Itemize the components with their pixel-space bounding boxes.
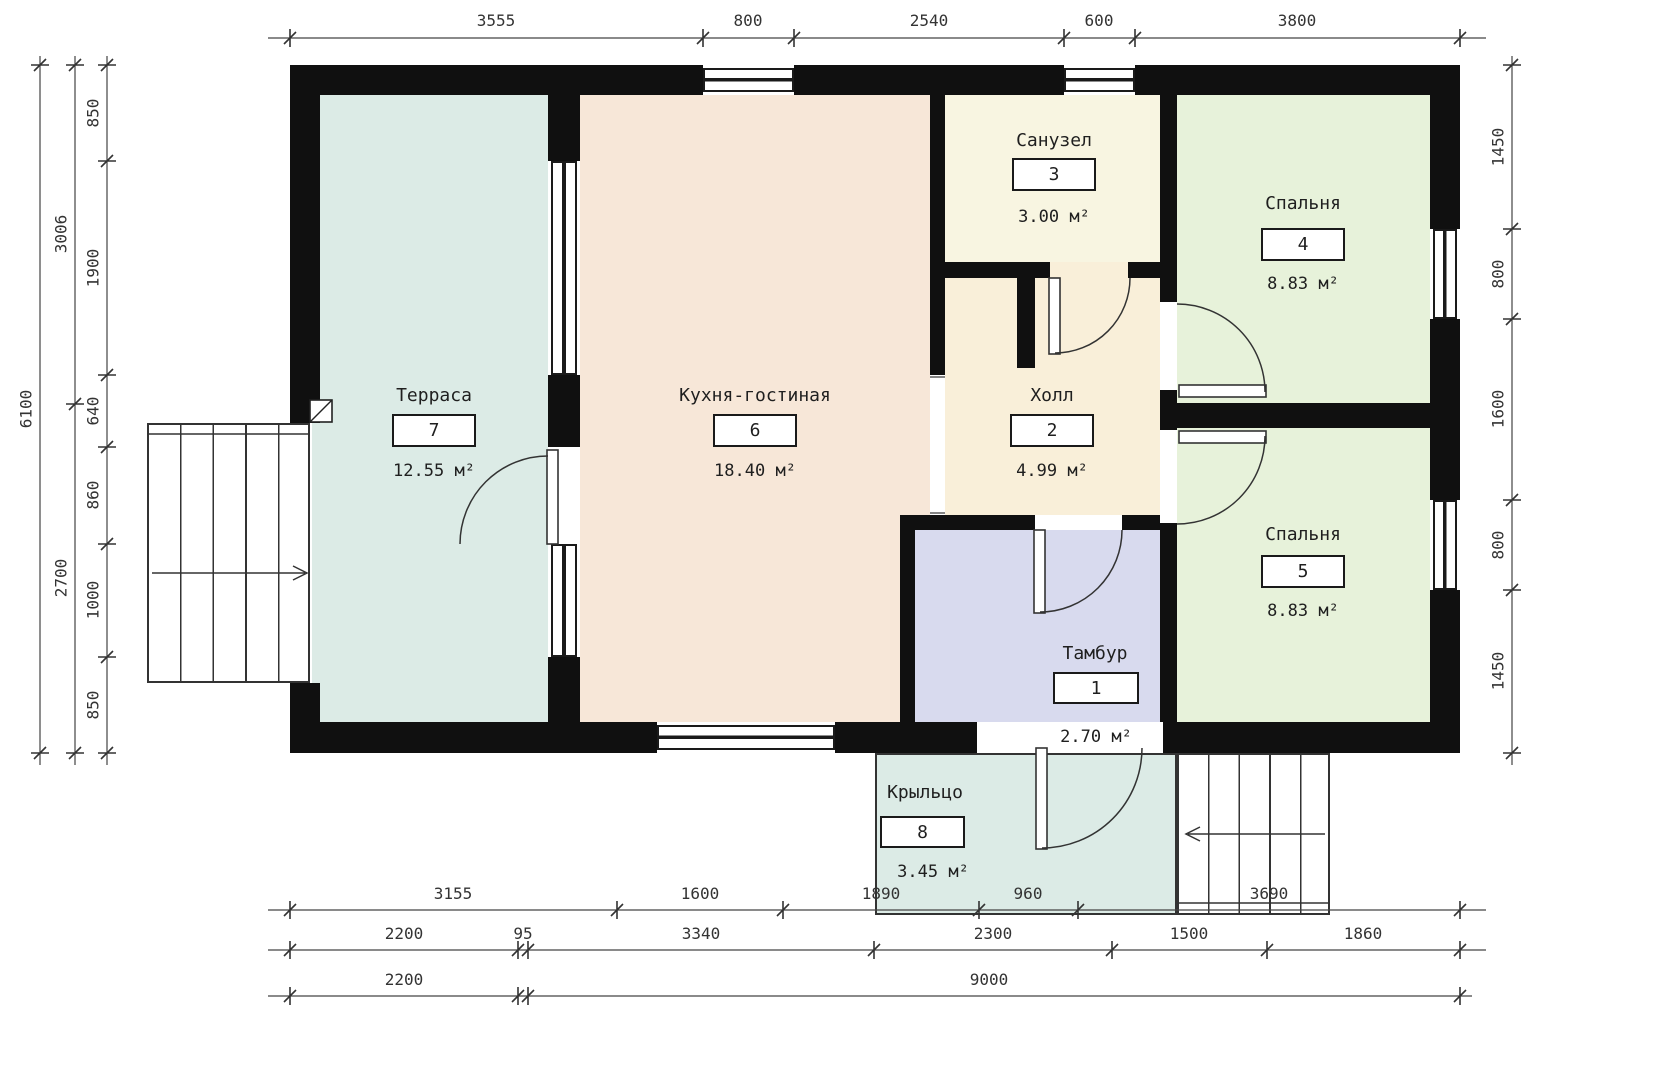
wall-hall-bedrooms-seg2 xyxy=(1160,390,1177,430)
room-fill-terrace xyxy=(312,95,548,722)
room-area: 18.40 м² xyxy=(714,461,796,481)
dim-bottom2-2: 3340 xyxy=(682,924,721,943)
room-number-box: 6 xyxy=(713,414,797,447)
wall-vestibule-top-seg1 xyxy=(900,515,1035,530)
door-leaf-terrace xyxy=(547,450,558,544)
room-number-box: 1 xyxy=(1053,672,1139,704)
wall-bottom-seg2 xyxy=(835,722,977,753)
room-area: 12.55 м² xyxy=(393,461,475,481)
dim-bottom1-3: 960 xyxy=(1014,884,1043,903)
wall-hall-bedrooms-seg3 xyxy=(1160,523,1177,722)
room-name: Кухня-гостиная xyxy=(679,385,831,406)
room-area: 4.99 м² xyxy=(1016,461,1088,481)
dim-right-3: 800 xyxy=(1489,531,1508,560)
room-area: 8.83 м² xyxy=(1267,601,1339,621)
wall-bottom-seg3 xyxy=(1163,722,1460,753)
room-number: 7 xyxy=(429,420,440,441)
room-name: Тамбур xyxy=(1062,643,1127,664)
wall-hall-bedrooms-seg1 xyxy=(1160,95,1177,302)
room-name: Спальня xyxy=(1265,524,1341,545)
wall-right-seg1 xyxy=(1430,65,1460,229)
wall-right-seg2 xyxy=(1430,319,1460,500)
dim-left-inner-0: 850 xyxy=(84,99,103,128)
dim-top-2: 2540 xyxy=(910,11,949,30)
dim-left-inner-4: 1000 xyxy=(84,581,103,620)
window-bathroom-top xyxy=(1064,68,1135,92)
dim-left-inner-1: 1900 xyxy=(84,249,103,288)
wall-terrace-kitchen-seg1 xyxy=(548,65,580,161)
stairs-terrace xyxy=(147,423,310,683)
wall-vestibule-top-seg2 xyxy=(1122,515,1160,530)
room-number: 5 xyxy=(1298,561,1309,582)
window-bedroom5 xyxy=(1433,500,1457,590)
room-number-box: 3 xyxy=(1012,158,1096,191)
room-number-box: 4 xyxy=(1261,228,1345,261)
dim-left-mid-1: 2700 xyxy=(52,559,71,598)
floor-plan-canvas: Терраса 7 12.55 м² Кухня-гостиная 6 18.4… xyxy=(0,0,1666,1080)
room-number-box: 2 xyxy=(1010,414,1094,447)
dim-bottom2-5: 1860 xyxy=(1344,924,1383,943)
dim-left-outer-0: 6100 xyxy=(17,390,36,429)
wall-bathroom-bottom-seg1 xyxy=(945,262,1050,278)
room-name: Холл xyxy=(1030,385,1073,406)
dim-bottom3-0: 2200 xyxy=(385,970,424,989)
dim-bottom1-0: 3155 xyxy=(434,884,473,903)
window-bedroom4 xyxy=(1433,229,1457,319)
room-number-box: 7 xyxy=(392,414,476,447)
room-number: 4 xyxy=(1298,234,1309,255)
dim-top-3: 600 xyxy=(1085,11,1114,30)
room-area: 8.83 м² xyxy=(1267,274,1339,294)
dim-bottom2-1: 95 xyxy=(513,924,532,943)
dim-bottom2-3: 2300 xyxy=(974,924,1013,943)
wall-terrace-kitchen-seg3 xyxy=(548,657,580,722)
dim-right-0: 1450 xyxy=(1489,128,1508,167)
dim-right-1: 800 xyxy=(1489,260,1508,289)
dim-bottom2-4: 1500 xyxy=(1170,924,1209,943)
wall-top-seg3 xyxy=(1135,65,1460,95)
window-terrace-wall-lower xyxy=(551,544,577,657)
passage-thresholds xyxy=(930,377,945,513)
window-kitchen-top xyxy=(703,68,794,92)
window-terrace-wall-upper xyxy=(551,161,577,375)
room-number-box: 8 xyxy=(880,816,965,848)
dim-left-mid-0: 3006 xyxy=(52,215,71,254)
wall-bedroom-divider xyxy=(1177,403,1430,428)
dim-right-2: 1600 xyxy=(1489,390,1508,429)
wall-terrace-kitchen-seg2 xyxy=(548,375,580,447)
wall-top-seg2 xyxy=(794,65,1064,95)
room-number: 6 xyxy=(750,420,761,441)
dim-bottom1-1: 1600 xyxy=(681,884,720,903)
wall-right-seg3 xyxy=(1430,590,1460,753)
dim-bottom1-4: 3690 xyxy=(1250,884,1289,903)
room-name: Спальня xyxy=(1265,193,1341,214)
dim-left-inner-3: 860 xyxy=(84,481,103,510)
window-kitchen-bottom xyxy=(657,725,835,750)
wall-left-seg1 xyxy=(290,65,320,423)
room-area: 3.45 м² xyxy=(897,862,969,882)
room-name: Крыльцо xyxy=(887,782,963,803)
dim-right-4: 1450 xyxy=(1489,652,1508,691)
dim-bottom3-1: 9000 xyxy=(970,970,1009,989)
dim-top-1: 800 xyxy=(734,11,763,30)
room-fill-kitchen xyxy=(580,95,930,722)
dim-left-inner-2: 640 xyxy=(84,397,103,426)
wall-vestibule-left xyxy=(900,515,915,722)
dim-bottom1-2: 1890 xyxy=(862,884,901,903)
dim-top-0: 3555 xyxy=(477,11,516,30)
wall-top-seg1 xyxy=(290,65,703,95)
dim-top-4: 3800 xyxy=(1278,11,1317,30)
wall-bottom-seg1 xyxy=(290,722,657,753)
dim-left-inner-5: 850 xyxy=(84,691,103,720)
room-number: 1 xyxy=(1091,678,1102,699)
dim-bottom2-0: 2200 xyxy=(385,924,424,943)
wall-kitchen-hall xyxy=(930,95,945,375)
room-number: 2 xyxy=(1047,420,1058,441)
wall-left-seg2 xyxy=(290,683,320,753)
room-name: Санузел xyxy=(1016,130,1092,151)
room-number: 8 xyxy=(917,822,928,843)
room-number: 3 xyxy=(1049,164,1060,185)
room-number-box: 5 xyxy=(1261,555,1345,588)
wall-hall-stub xyxy=(1017,278,1035,368)
room-name: Терраса xyxy=(396,385,472,406)
room-area: 3.00 м² xyxy=(1018,207,1090,227)
room-area: 2.70 м² xyxy=(1060,727,1132,747)
